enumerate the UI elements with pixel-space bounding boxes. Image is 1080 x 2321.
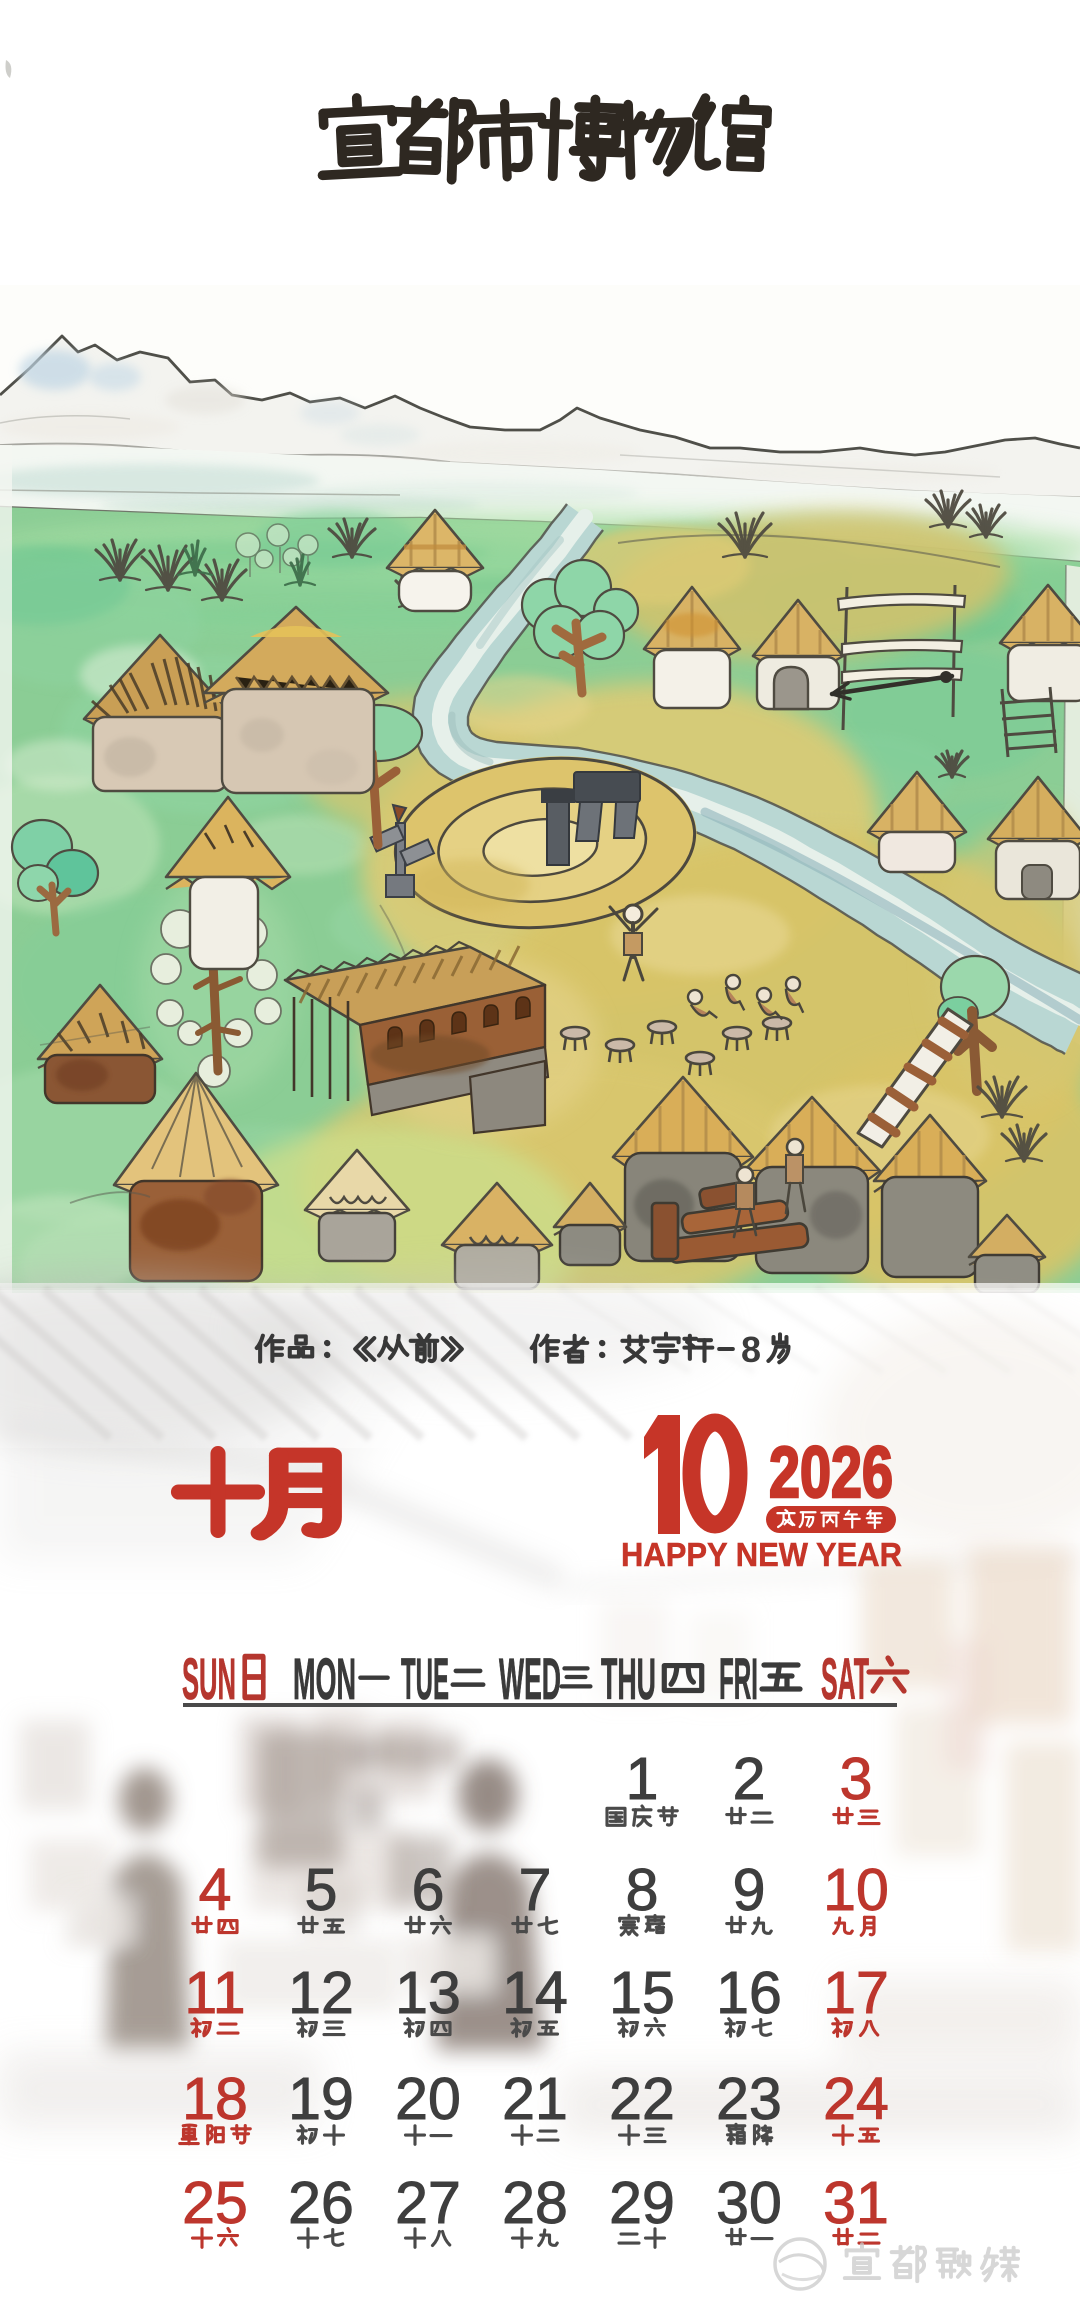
svg-text:19: 19 [288,2066,354,2132]
svg-text:14: 14 [502,1960,568,2026]
svg-text:23: 23 [716,2066,782,2132]
svg-text:24: 24 [823,2066,889,2132]
svg-text:2026: 2026 [769,1433,893,1513]
svg-text:1: 1 [626,1746,659,1812]
svg-text:6: 6 [412,1857,445,1923]
svg-text:20: 20 [395,2066,461,2132]
svg-text:5: 5 [305,1857,338,1923]
svg-text:29: 29 [609,2170,675,2236]
svg-text:8: 8 [741,1329,761,1370]
svg-text:SAT: SAT [821,1647,869,1712]
svg-text:10: 10 [823,1857,889,1923]
svg-text:7: 7 [519,1857,552,1923]
svg-text:8: 8 [626,1857,659,1923]
svg-text:26: 26 [288,2170,354,2236]
svg-text:15: 15 [609,1960,675,2026]
svg-text:27: 27 [395,2170,461,2236]
svg-text:SUN: SUN [182,1647,236,1712]
svg-text:4: 4 [199,1857,232,1923]
svg-text:16: 16 [716,1960,782,2026]
svg-text:FRI: FRI [719,1647,758,1712]
svg-text:WED: WED [499,1647,561,1712]
svg-text:12: 12 [288,1960,354,2026]
svg-text:31: 31 [823,2170,889,2236]
svg-text:21: 21 [502,2066,568,2132]
svg-text:13: 13 [395,1960,461,2026]
svg-text:30: 30 [716,2170,782,2236]
svg-text:17: 17 [823,1960,889,2026]
svg-text:3: 3 [840,1746,873,1812]
svg-text:11: 11 [184,1960,245,2026]
svg-text:THU: THU [601,1647,656,1712]
svg-text:2: 2 [733,1746,766,1812]
svg-text:22: 22 [609,2066,675,2132]
svg-text:9: 9 [733,1857,766,1923]
svg-text:28: 28 [502,2170,568,2236]
svg-text:TUE: TUE [401,1647,449,1712]
svg-text:18: 18 [182,2066,248,2132]
svg-text:HAPPY NEW YEAR: HAPPY NEW YEAR [621,1536,902,1573]
svg-text:25: 25 [182,2170,248,2236]
svg-text:MON: MON [293,1647,356,1712]
